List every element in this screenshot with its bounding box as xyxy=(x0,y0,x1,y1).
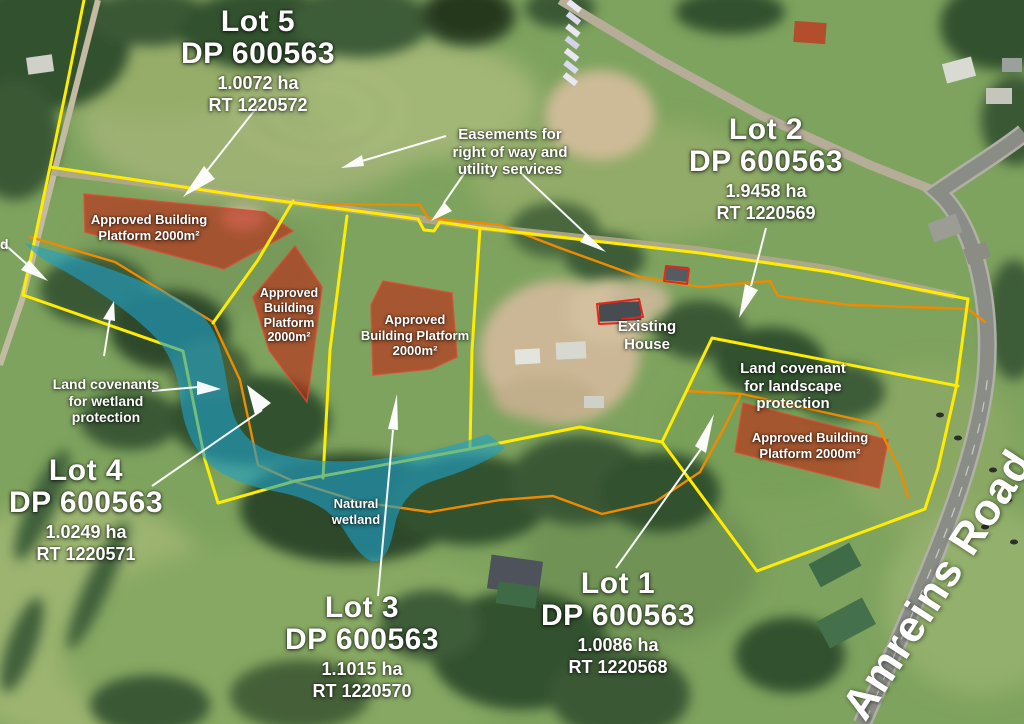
lot-area: 1.0086 ha xyxy=(541,635,695,657)
easements-label: Easements for right of way and utility s… xyxy=(452,126,567,179)
lot3-label: Lot 3 DP 600563 1.1015 ha RT 1220570 xyxy=(285,592,439,702)
lot-rt: RT 1220572 xyxy=(181,95,335,117)
lot-rt: RT 1220568 xyxy=(541,657,695,679)
platform-label-lot1: Approved Building Platform 2000m² xyxy=(752,430,868,461)
lot-area: 1.9458 ha xyxy=(689,181,843,203)
lot-plan: DP 600563 xyxy=(181,38,335,70)
platform-label-lot5: Approved Building Platform 2000m² xyxy=(91,212,207,243)
lot-rt: RT 1220569 xyxy=(689,203,843,225)
lot-name: Lot 2 xyxy=(689,114,843,146)
edge-text-fragment: d xyxy=(0,236,9,252)
lot5-label: Lot 5 DP 600563 1.0072 ha RT 1220572 xyxy=(181,6,335,116)
natural-wetland-label: Natural wetland xyxy=(332,496,380,527)
lot-plan: DP 600563 xyxy=(285,624,439,656)
lot-rt: RT 1220570 xyxy=(285,681,439,703)
lot1-label: Lot 1 DP 600563 1.0086 ha RT 1220568 xyxy=(541,568,695,678)
aerial-photo xyxy=(0,0,1024,724)
existing-house-label: Existing House xyxy=(618,318,676,353)
lot-area: 1.1015 ha xyxy=(285,659,439,681)
lot-plan: DP 600563 xyxy=(541,600,695,632)
lot2-label: Lot 2 DP 600563 1.9458 ha RT 1220569 xyxy=(689,114,843,224)
lot-plan: DP 600563 xyxy=(689,146,843,178)
lot4-label: Lot 4 DP 600563 1.0249 ha RT 1220571 xyxy=(9,455,163,565)
lot-area: 1.0249 ha xyxy=(9,522,163,544)
lot-name: Lot 5 xyxy=(181,6,335,38)
platform-label-lot3: Approved Building Platform 2000m² xyxy=(361,312,469,359)
subdivision-plan-map: Lot 5 DP 600563 1.0072 ha RT 1220572 Lot… xyxy=(0,0,1024,724)
lot-name: Lot 1 xyxy=(541,568,695,600)
lot-area: 1.0072 ha xyxy=(181,73,335,95)
platform-label-lot4: Approved Building Platform 2000m² xyxy=(260,286,318,345)
wetland-covenant-label: Land covenants for wetland protection xyxy=(53,376,160,426)
lot-rt: RT 1220571 xyxy=(9,544,163,566)
lot-plan: DP 600563 xyxy=(9,487,163,519)
lot-name: Lot 4 xyxy=(9,455,163,487)
aerial-map-canvas xyxy=(0,0,1024,724)
landscape-covenant-label: Land covenant for landscape protection xyxy=(740,360,846,413)
lot-name: Lot 3 xyxy=(285,592,439,624)
